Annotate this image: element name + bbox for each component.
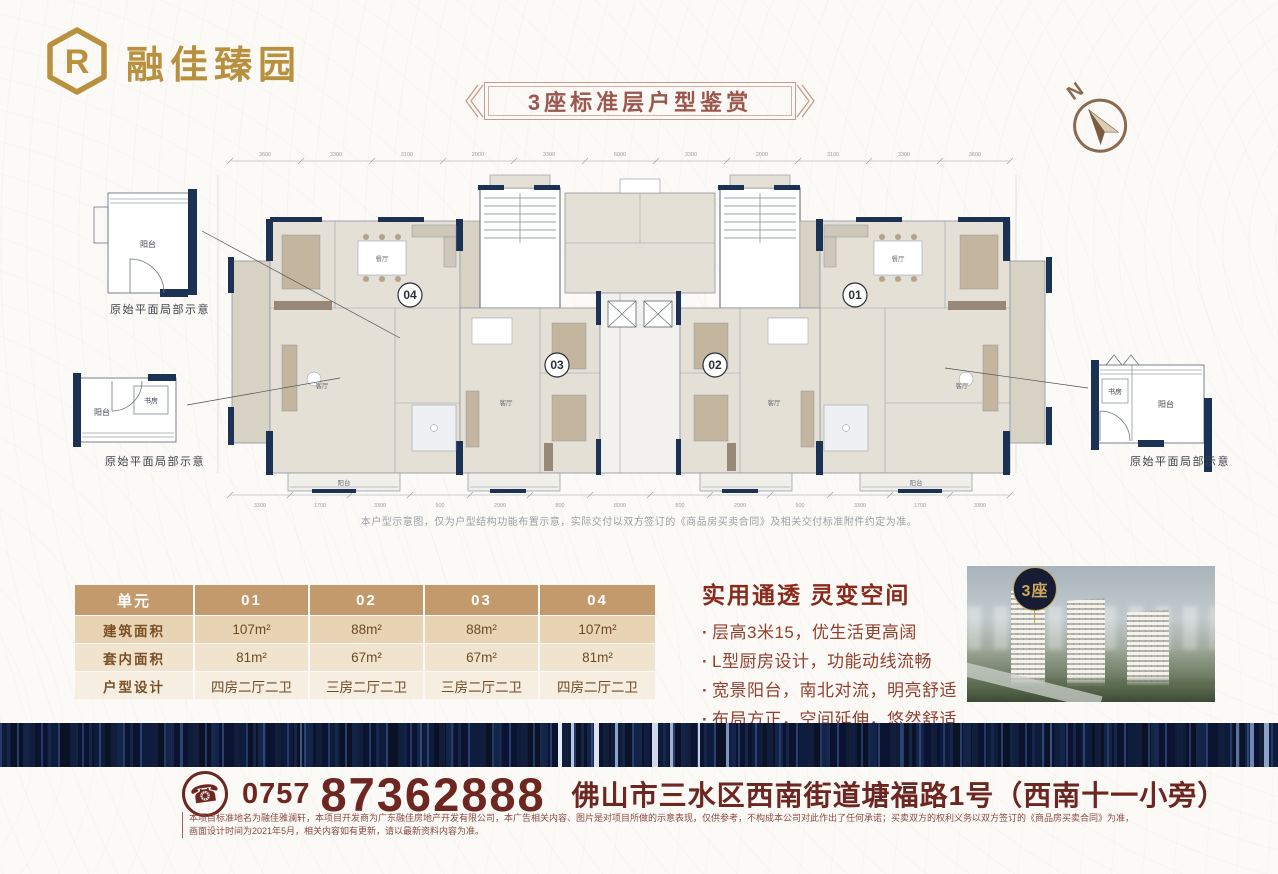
svg-text:阳台: 阳台: [1158, 399, 1174, 409]
svg-text:客厅: 客厅: [956, 381, 970, 390]
table-cell: 88m²: [310, 615, 425, 643]
table-cell: 81m²: [540, 643, 655, 671]
svg-text:餐厅: 餐厅: [376, 254, 390, 263]
svg-text:3300: 3300: [854, 503, 866, 509]
inset-caption-2: 原始平面局部示意: [80, 453, 230, 469]
bullet-marker: ·: [702, 618, 712, 647]
row-label: 户型设计: [75, 671, 195, 699]
legal-disclaimer: 本项目标准地名为融佳雅澜轩，本项目开发商为广东融佳房地产开发有限公司，本广告相关…: [182, 812, 1140, 838]
unit-badge-03: 03: [550, 358, 564, 372]
building-badge: 3座: [1013, 567, 1057, 611]
logo-mark: R: [65, 43, 90, 81]
svg-text:2900: 2900: [734, 503, 746, 509]
selling-points-title: 实用通透 灵变空间: [702, 576, 968, 610]
svg-text:阳台: 阳台: [338, 478, 351, 487]
svg-text:3600: 3600: [259, 152, 271, 158]
table-row: 建筑面积 107m² 88m² 88m² 107m²: [75, 615, 655, 643]
poster-page: R 融佳臻园 3座标准层户型鉴赏 N: [0, 0, 1278, 874]
svg-text:3300: 3300: [254, 503, 266, 509]
hexagon-logo-icon: R: [44, 26, 110, 96]
table-header-cell: 03: [425, 585, 540, 615]
brand-logo: R 融佳臻园: [44, 26, 302, 96]
badge-stem: [1034, 611, 1035, 623]
svg-text:3600: 3600: [969, 152, 981, 158]
svg-text:3300: 3300: [974, 503, 986, 509]
svg-text:阳台: 阳台: [910, 478, 923, 487]
svg-text:3100: 3100: [827, 152, 839, 158]
table-row: 套内面积 81m² 67m² 67m² 81m²: [75, 643, 655, 671]
svg-text:1700: 1700: [314, 503, 326, 509]
svg-text:客厅: 客厅: [500, 398, 514, 407]
svg-text:书房: 书房: [1108, 387, 1122, 396]
units-table: 单元 01 02 03 04 建筑面积 107m² 88m² 88m² 107m…: [75, 585, 655, 699]
svg-text:阳台: 阳台: [140, 239, 156, 249]
table-cell: 四房二厅二卫: [540, 671, 655, 699]
svg-text:900: 900: [435, 503, 444, 509]
selling-point-text: 宽景阳台，南北对流，明亮舒适: [712, 676, 957, 705]
selling-point-text: 层高3米15，优生活更高阔: [712, 618, 917, 647]
selling-point-item: · 宽景阳台，南北对流，明亮舒适: [702, 676, 968, 705]
table-header-cell: 02: [310, 585, 425, 615]
banner-frame: 3座标准层户型鉴赏: [484, 82, 796, 120]
table-cell: 67m²: [425, 643, 540, 671]
dimension-strip-top: 3600 3300 3100 2000 3300 6000 3300 2000 …: [227, 152, 1013, 164]
svg-text:3300: 3300: [898, 152, 910, 158]
svg-text:客厅: 客厅: [768, 398, 782, 407]
table-cell: 67m²: [310, 643, 425, 671]
table-header-cell: 01: [195, 585, 310, 615]
svg-text:800: 800: [675, 503, 684, 509]
svg-text:3100: 3100: [401, 152, 413, 158]
bullet-marker: ·: [702, 647, 712, 676]
banner-title: 3座标准层户型鉴赏: [528, 85, 752, 117]
svg-text:3300: 3300: [374, 503, 386, 509]
svg-text:2900: 2900: [494, 503, 506, 509]
svg-text:阳台: 阳台: [94, 407, 110, 417]
svg-text:书房: 书房: [144, 396, 158, 405]
banner-right-chevron-icon: [796, 82, 818, 120]
brand-name: 融佳臻园: [126, 34, 302, 89]
unit-badge-01: 01: [848, 288, 862, 302]
balconies: [288, 473, 972, 491]
selling-point-item: · 层高3米15，优生活更高阔: [702, 618, 968, 647]
svg-text:餐厅: 餐厅: [892, 254, 906, 263]
svg-text:3300: 3300: [685, 152, 697, 158]
inset-plan-2: 阳台 书房: [73, 373, 176, 447]
row-label: 套内面积: [75, 643, 195, 671]
building-render-image: 3座: [967, 566, 1215, 702]
inset-caption-3: 原始平面局部示意: [1110, 453, 1250, 469]
svg-text:3300: 3300: [543, 152, 555, 158]
table-header-cell: 04: [540, 585, 655, 615]
inset-plan-1: 阳台: [94, 189, 197, 297]
unit-badge-04: 04: [403, 288, 417, 302]
table-cell: 三房二厅二卫: [310, 671, 425, 699]
table-cell: 三房二厅二卫: [425, 671, 540, 699]
table-cell: 81m²: [195, 643, 310, 671]
svg-text:900: 900: [795, 503, 804, 509]
skyline-stripe-band: [0, 723, 1278, 767]
floorplan-area: 3600 3300 3100 2000 3300 6000 3300 2000 …: [60, 143, 1220, 513]
svg-text:2000: 2000: [472, 152, 484, 158]
table-header-cell: 单元: [75, 585, 195, 615]
row-label: 建筑面积: [75, 615, 195, 643]
selling-point-text: L型厨房设计，功能动线流畅: [712, 647, 932, 676]
section-banner: 3座标准层户型鉴赏: [462, 82, 818, 120]
table-cell: 88m²: [425, 615, 540, 643]
svg-text:800: 800: [555, 503, 564, 509]
unit-badge-02: 02: [708, 358, 722, 372]
dimension-strip-bottom: 3300 1700 3300 900 2900 800 8000 800 290…: [227, 492, 1013, 509]
table-row: 户型设计 四房二厅二卫 三房二厅二卫 三房二厅二卫 四房二厅二卫: [75, 671, 655, 699]
table-header-row: 单元 01 02 03 04: [75, 585, 655, 615]
selling-points: 实用通透 灵变空间 · 层高3米15，优生活更高阔 · L型厨房设计，功能动线流…: [702, 576, 968, 734]
svg-text:客厅: 客厅: [316, 381, 330, 390]
svg-text:3300: 3300: [330, 152, 342, 158]
svg-text:2000: 2000: [756, 152, 768, 158]
inset-caption-1: 原始平面局部示意: [100, 301, 220, 317]
banner-left-chevron-icon: [462, 82, 484, 120]
project-address: 佛山市三水区西南街道塘福路1号（西南十一小旁）: [572, 774, 1227, 814]
table-cell: 107m²: [540, 615, 655, 643]
svg-text:6000: 6000: [614, 152, 626, 158]
selling-point-item: · L型厨房设计，功能动线流畅: [702, 647, 968, 676]
table-cell: 四房二厅二卫: [195, 671, 310, 699]
floorplan-drawing: 3600 3300 3100 2000 3300 6000 3300 2000 …: [60, 143, 1220, 513]
table-cell: 107m²: [195, 615, 310, 643]
plan-disclaimer: 本户型示意图，仅为户型结构功能布置示意，实际交付以双方签订的《商品房买卖合同》及…: [0, 513, 1278, 528]
svg-text:8000: 8000: [614, 503, 626, 509]
phone-area-code: 0757: [242, 778, 311, 811]
svg-text:1700: 1700: [914, 503, 926, 509]
floorplan-units: [232, 175, 1045, 473]
bullet-marker: ·: [702, 676, 712, 705]
